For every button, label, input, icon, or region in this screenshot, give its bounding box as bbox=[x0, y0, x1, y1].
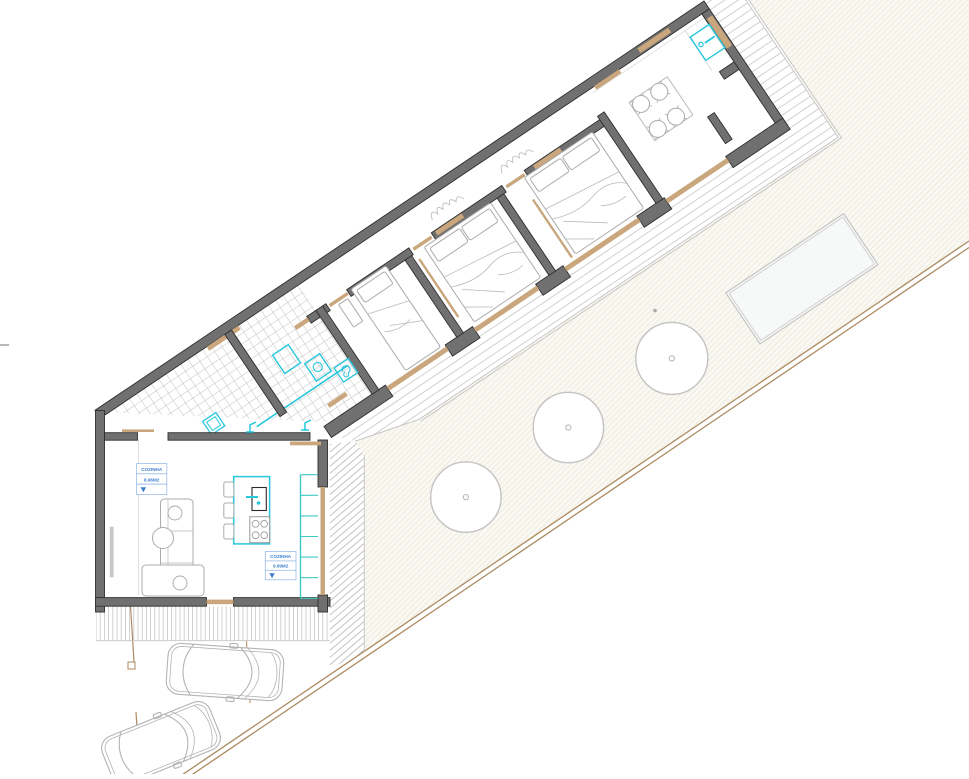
svg-text:COZINHA: COZINHA bbox=[141, 467, 163, 472]
svg-text:9.99M2: 9.99M2 bbox=[273, 564, 289, 569]
svg-text:COZINHA: COZINHA bbox=[270, 554, 292, 559]
svg-text:8.96M2: 8.96M2 bbox=[144, 477, 160, 482]
